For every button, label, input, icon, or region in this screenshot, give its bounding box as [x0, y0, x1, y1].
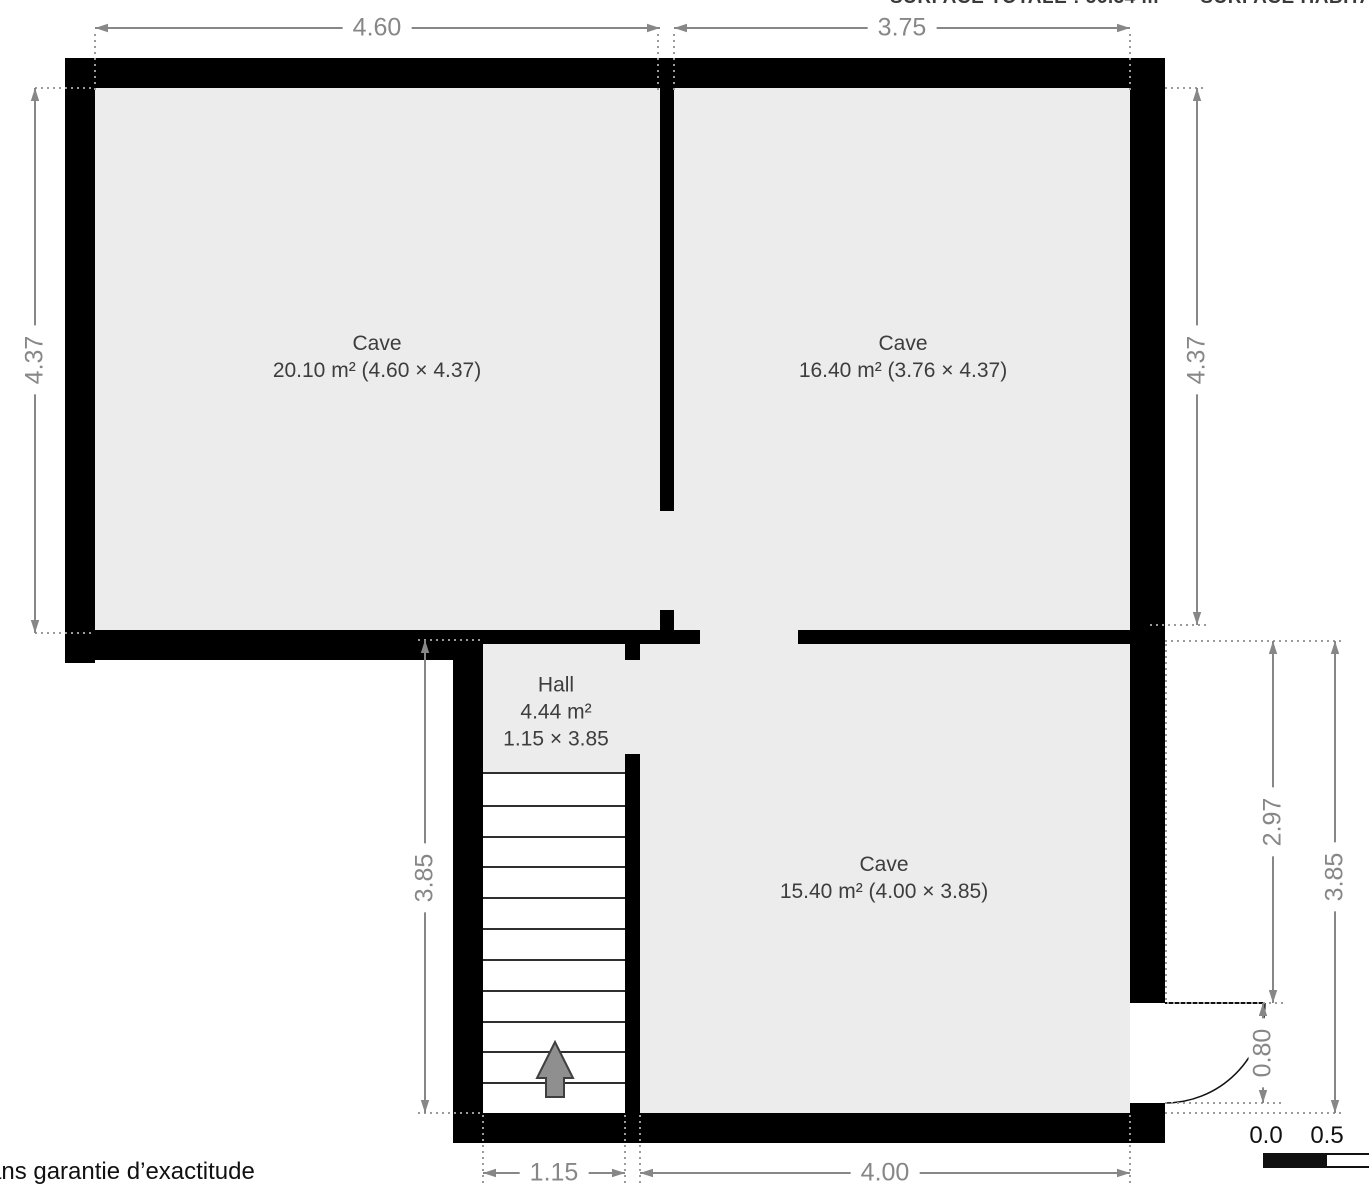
dimension-top-right: 3.75 [868, 14, 937, 43]
wall-hall-right-stub [625, 644, 640, 660]
scale-bar [1263, 1153, 1369, 1168]
surface-summary: SURFACE TOTALE : 56.34 m² SURFACE HABITA… [890, 0, 1369, 9]
wall-right-lower [1130, 644, 1165, 1003]
stair-tread-line [483, 928, 625, 930]
room-details: 20.10 m² (4.60 × 4.37) [273, 357, 481, 384]
stair-tread-line [483, 1021, 625, 1023]
scale-bar-filled-segment [1265, 1155, 1327, 1166]
room-name: Hall [503, 672, 609, 699]
stair-tread-line [483, 1082, 625, 1084]
room-label-cave-top-right: Cave 16.40 m² (3.76 × 4.37) [799, 330, 1007, 384]
wall-mid-right [798, 630, 1165, 644]
wall-divider-stub [660, 610, 674, 630]
stair-tread-line [483, 990, 625, 992]
wall-bottom [453, 1113, 1165, 1143]
wall-top [65, 58, 1165, 88]
floorplan-drawing [0, 0, 1369, 1200]
wall-right-upper [1130, 88, 1165, 640]
floor-doorway-hall [625, 658, 640, 754]
room-label-cave-top-left: Cave 20.10 m² (4.60 × 4.37) [273, 330, 481, 384]
dimension-left-lower: 3.85 [411, 844, 440, 913]
scale-label-half: 0.5 [1310, 1122, 1343, 1150]
stairs [483, 772, 625, 1113]
wall-door-stub [1130, 1103, 1165, 1133]
disclaimer-text: sans garantie d’exactitude [0, 1158, 255, 1186]
stair-tread-line [483, 897, 625, 899]
dimension-right-outer: 3.85 [1321, 843, 1350, 912]
dimension-top-left: 4.60 [343, 14, 412, 43]
dimension-bottom-left: 1.15 [520, 1159, 589, 1188]
stair-tread-line [483, 1051, 625, 1053]
room-name: Cave [799, 330, 1007, 357]
dimension-right-upper: 4.37 [1183, 326, 1212, 395]
room-size: 1.15 × 3.85 [503, 726, 609, 753]
dimension-door: 0.80 [1249, 1019, 1278, 1088]
stair-tread-line [483, 866, 625, 868]
room-area: 4.44 m² [503, 699, 609, 726]
extension-lines [35, 34, 1345, 1185]
room-name: Cave [780, 851, 988, 878]
scale-label-start: 0.0 [1249, 1122, 1282, 1150]
stair-tread-line [483, 805, 625, 807]
dimension-left-upper: 4.37 [21, 326, 50, 395]
wall-hall-right [625, 754, 640, 1115]
stair-tread-line [483, 959, 625, 961]
room-details: 15.40 m² (4.00 × 3.85) [780, 878, 988, 905]
wall-bottom-left-cave [65, 630, 483, 660]
wall-hall-left [453, 660, 483, 1143]
floor-doorway-mid [700, 630, 798, 644]
wall-left [65, 88, 95, 663]
dimension-right-inner: 2.97 [1259, 788, 1288, 857]
room-label-hall: Hall 4.44 m² 1.15 × 3.85 [503, 672, 609, 753]
room-label-cave-bottom: Cave 15.40 m² (4.00 × 3.85) [780, 851, 988, 905]
wall-divider-caves [660, 88, 674, 511]
dimension-lines [35, 28, 1335, 1173]
dimension-bottom-right: 4.00 [851, 1159, 920, 1188]
floorplan-page: Cave 20.10 m² (4.60 × 4.37) Cave 16.40 m… [0, 0, 1369, 1200]
room-name: Cave [273, 330, 481, 357]
stair-tread-line [483, 836, 625, 838]
floor-doorway-upper [660, 511, 674, 610]
room-details: 16.40 m² (3.76 × 4.37) [799, 357, 1007, 384]
wall-hall-top [483, 630, 700, 644]
